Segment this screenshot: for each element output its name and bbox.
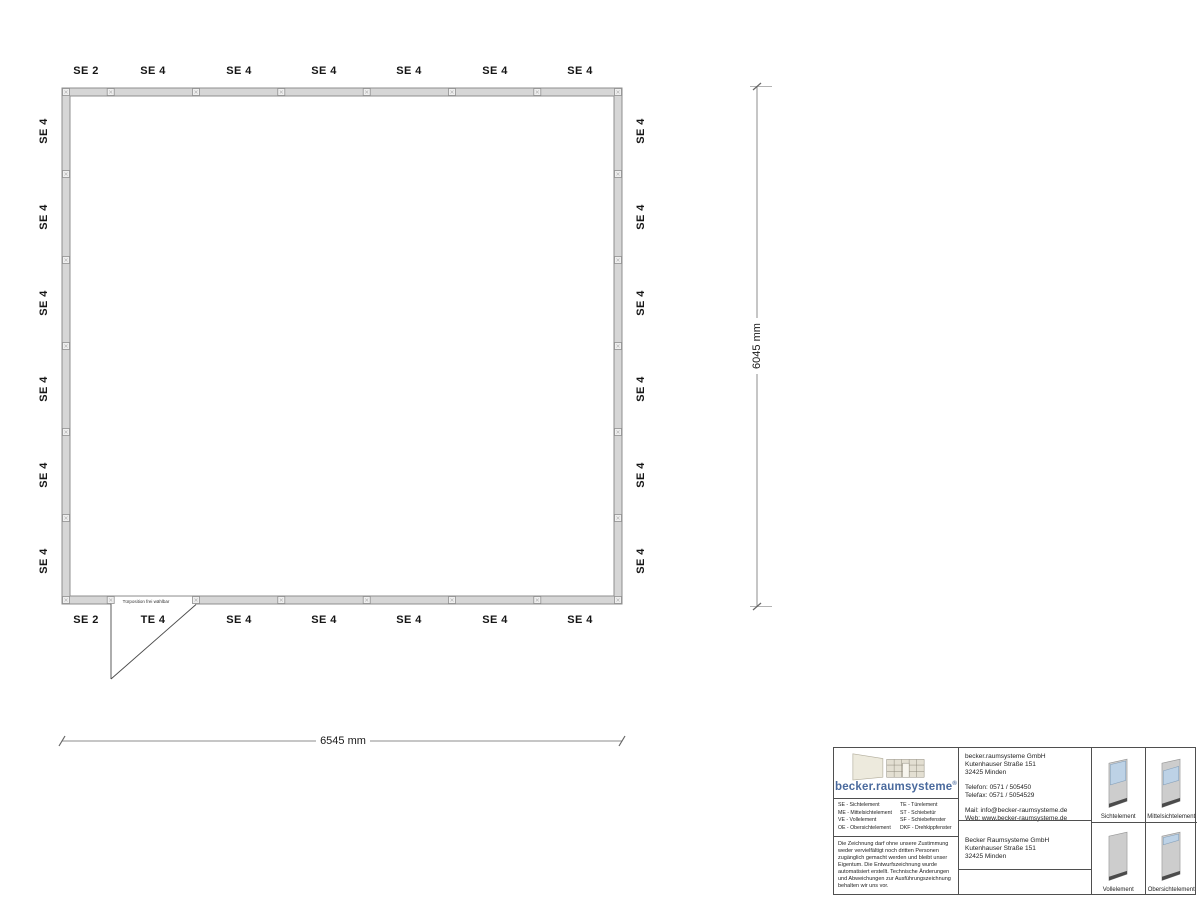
element-label-left-3: SE 4	[37, 273, 51, 333]
element-label-bottom-5: SE 4	[379, 613, 439, 627]
element-label-bottom-1: SE 2	[56, 613, 116, 627]
element-label-right-2: SE 4	[634, 187, 648, 247]
element-label-top-6: SE 4	[465, 64, 525, 78]
door-position-note: Türposition frei wählbar	[103, 599, 189, 604]
vollelement-image	[1101, 829, 1135, 885]
legend-item: ME - Mittelsichtelement	[838, 810, 900, 818]
company-street: Kutenhauser Straße 151	[965, 761, 1085, 769]
corner-post	[63, 597, 70, 604]
element-card-obersichtelement: Obersichtelement	[1145, 822, 1198, 896]
height-dimension-text: 6045 mm	[750, 306, 764, 386]
element-card-label: Sichtelement	[1101, 814, 1136, 820]
company-fax: Telefax: 0571 / 5054529	[965, 792, 1085, 800]
element-label-bottom-3: SE 4	[209, 613, 269, 627]
element-label-bottom-6: SE 4	[465, 613, 525, 627]
element-card-mittelsichtelement: Mittelsichtelement	[1145, 748, 1198, 822]
company-logo-image	[848, 751, 944, 781]
company-phone: Telefon: 0571 / 505450	[965, 784, 1085, 792]
sichtelement-image	[1101, 756, 1135, 812]
corner-post	[615, 89, 622, 96]
element-label-bottom-4: SE 4	[294, 613, 354, 627]
empty-cell	[958, 869, 1091, 895]
legend-item: TE - Türelement	[900, 802, 952, 810]
element-label-top-1: SE 2	[56, 64, 116, 78]
element-label-top-2: SE 4	[123, 64, 183, 78]
logo-cell: becker.raumsysteme®	[834, 748, 958, 798]
element-label-top-7: SE 4	[550, 64, 610, 78]
contact-cell: becker.raumsysteme GmbH Kutenhauser Stra…	[958, 748, 1091, 820]
legend-item: SE - Sichtelement	[838, 802, 900, 810]
company2-name: Becker Raumsysteme GmbH	[965, 837, 1085, 845]
wall-outline-inner	[70, 96, 614, 596]
title-block: becker.raumsysteme® SE - SichtelementTE …	[833, 747, 1196, 895]
element-card-label: Mittelsichtelement	[1147, 814, 1195, 820]
width-dimension-text: 6545 mm	[303, 734, 383, 748]
element-label-top-4: SE 4	[294, 64, 354, 78]
company2-street: Kutenhauser Straße 151	[965, 845, 1085, 853]
copyright-notice-cell: Die Zeichnung darf ohne unsere Zustimmun…	[834, 836, 958, 895]
element-label-left-5: SE 4	[37, 445, 51, 505]
element-card-sichtelement: Sichtelement	[1092, 748, 1145, 822]
legend-item: DKF - Drehkippfenster	[900, 825, 952, 833]
element-label-left-2: SE 4	[37, 187, 51, 247]
element-label-bottom-7: SE 4	[550, 613, 610, 627]
element-label-right-3: SE 4	[634, 273, 648, 333]
company-mail: Mail: info@becker-raumsysteme.de	[965, 807, 1085, 815]
element-type-cards: Sichtelement Mittelsichtelement Vollelem…	[1091, 748, 1197, 895]
element-card-label: Obersichtelement	[1148, 887, 1195, 893]
corner-post	[615, 597, 622, 604]
company-city: 32425 Minden	[965, 769, 1085, 777]
element-label-right-6: SE 4	[634, 531, 648, 591]
element-card-vollelement: Vollelement	[1092, 822, 1145, 896]
company-cell: Becker Raumsysteme GmbH Kutenhauser Stra…	[958, 820, 1091, 869]
element-card-label: Vollelement	[1103, 887, 1134, 893]
element-label-top-5: SE 4	[379, 64, 439, 78]
obersichtelement-image	[1154, 829, 1188, 885]
company-logo-text: becker.raumsysteme®	[835, 781, 957, 793]
copyright-notice: Die Zeichnung darf ohne unsere Zustimmun…	[838, 841, 954, 890]
element-label-left-4: SE 4	[37, 359, 51, 419]
corner-post	[63, 89, 70, 96]
mittelsichtelement-image	[1154, 756, 1188, 812]
element-label-left-1: SE 4	[37, 101, 51, 161]
legend-item: OE - Obersichtelement	[838, 825, 900, 833]
legend-item: ST - Schiebetür	[900, 810, 952, 818]
company2-city: 32425 Minden	[965, 853, 1085, 861]
drawing-canvas: SE 2 SE 4 SE 4 SE 4 SE 4 SE 4 SE 4 SE 2 …	[0, 0, 1200, 900]
legend-item: SF - Schiebefenster	[900, 817, 952, 825]
element-label-right-4: SE 4	[634, 359, 648, 419]
company-name: becker.raumsysteme GmbH	[965, 753, 1085, 761]
element-label-bottom-2: TE 4	[123, 613, 183, 627]
element-label-left-6: SE 4	[37, 531, 51, 591]
registered-mark: ®	[952, 781, 957, 787]
element-label-right-5: SE 4	[634, 445, 648, 505]
element-label-top-3: SE 4	[209, 64, 269, 78]
element-label-right-1: SE 4	[634, 101, 648, 161]
abbreviation-legend: SE - SichtelementTE - Türelement ME - Mi…	[834, 798, 958, 836]
legend-item: VE - Vollelement	[838, 817, 900, 825]
